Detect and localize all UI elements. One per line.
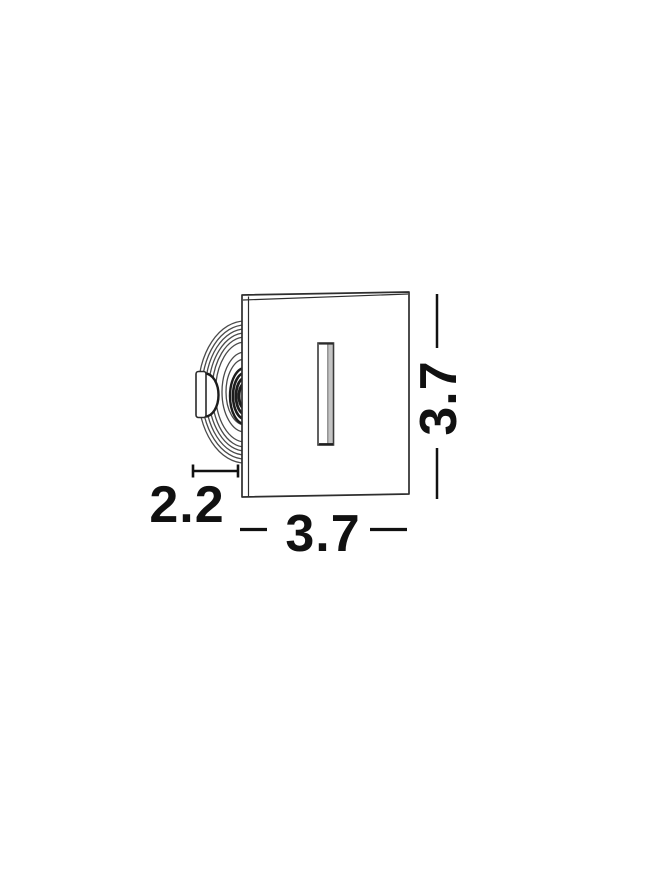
height-dimension-label: 3.7 (410, 360, 468, 435)
faceplate (242, 292, 409, 497)
clip-face (196, 372, 206, 418)
faceplate-outline (242, 292, 409, 497)
drawing-canvas: 2.2 3.7 3.7 (0, 0, 667, 879)
slot-inner-shade (328, 344, 333, 444)
dimension-drawing: 2.2 3.7 3.7 (0, 0, 667, 879)
mounting-clip (196, 372, 218, 418)
width-dimension-label: 3.7 (285, 505, 360, 563)
depth-dimension-label: 2.2 (149, 476, 224, 534)
